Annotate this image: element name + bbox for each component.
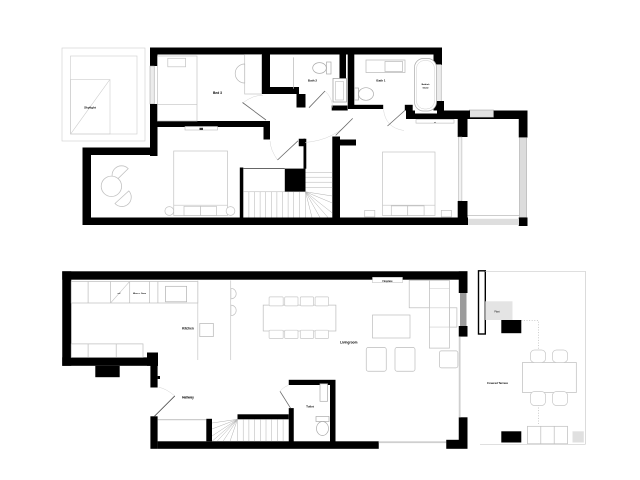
svg-text:Livingroom: Livingroom [340, 341, 358, 345]
svg-text:Fireplace: Fireplace [382, 281, 393, 283]
svg-text:Toilet: Toilet [306, 405, 314, 409]
svg-text:Bath 1: Bath 1 [376, 79, 386, 83]
svg-text:Kitchen: Kitchen [182, 327, 194, 331]
svg-text:Hallway: Hallway [182, 395, 194, 399]
svg-text:60x32: 60x32 [423, 87, 430, 89]
svg-text:ref: ref [118, 292, 121, 295]
svg-text:Micro + Oven: Micro + Oven [133, 292, 147, 295]
svg-text:Covered Terrace: Covered Terrace [487, 381, 509, 385]
svg-text:Plant: Plant [494, 311, 500, 314]
svg-text:Bathtub: Bathtub [422, 83, 431, 86]
svg-text:Skylight: Skylight [84, 106, 96, 110]
svg-text:Bath 2: Bath 2 [308, 79, 318, 83]
svg-text:Bed 3: Bed 3 [213, 91, 222, 95]
